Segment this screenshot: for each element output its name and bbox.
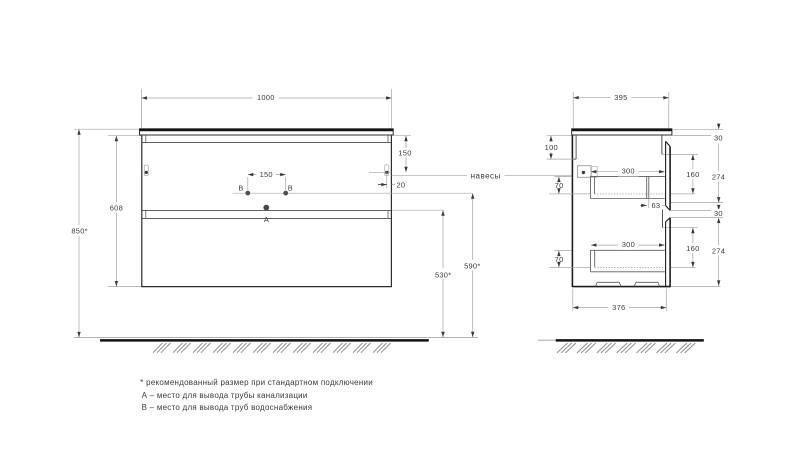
svg-text:1000: 1000 — [257, 93, 275, 102]
svg-text:590*: 590* — [464, 262, 480, 271]
svg-text:63: 63 — [652, 201, 661, 210]
svg-text:B: B — [238, 183, 243, 192]
svg-text:395: 395 — [614, 93, 627, 102]
svg-text:30: 30 — [714, 134, 723, 143]
svg-text:160: 160 — [686, 170, 699, 179]
svg-text:20: 20 — [397, 180, 406, 189]
svg-text:В – место для вывода труб водо: В – место для вывода труб водоснабжения — [142, 403, 313, 412]
svg-text:300: 300 — [622, 167, 635, 176]
svg-text:160: 160 — [686, 244, 699, 253]
svg-text:100: 100 — [545, 143, 558, 152]
svg-text:274: 274 — [712, 247, 725, 256]
svg-text:608: 608 — [110, 203, 123, 212]
svg-text:300: 300 — [622, 240, 635, 249]
svg-text:B: B — [288, 183, 293, 192]
svg-text:70: 70 — [555, 255, 564, 264]
svg-text:150: 150 — [260, 170, 273, 179]
svg-text:274: 274 — [712, 173, 725, 182]
svg-text:70: 70 — [555, 181, 564, 190]
svg-text:530*: 530* — [435, 270, 451, 279]
svg-text:A: A — [264, 215, 269, 224]
svg-text:30: 30 — [714, 209, 723, 218]
svg-text:А – место для вывода трубы кан: А – место для вывода трубы канализации — [142, 391, 308, 400]
svg-text:навесы: навесы — [471, 171, 501, 180]
svg-text:376: 376 — [612, 303, 625, 312]
svg-text:850*: 850* — [71, 227, 87, 236]
svg-text:150: 150 — [398, 149, 411, 158]
svg-text:* рекомендованный размер при с: * рекомендованный размер при стандартном… — [140, 378, 373, 387]
